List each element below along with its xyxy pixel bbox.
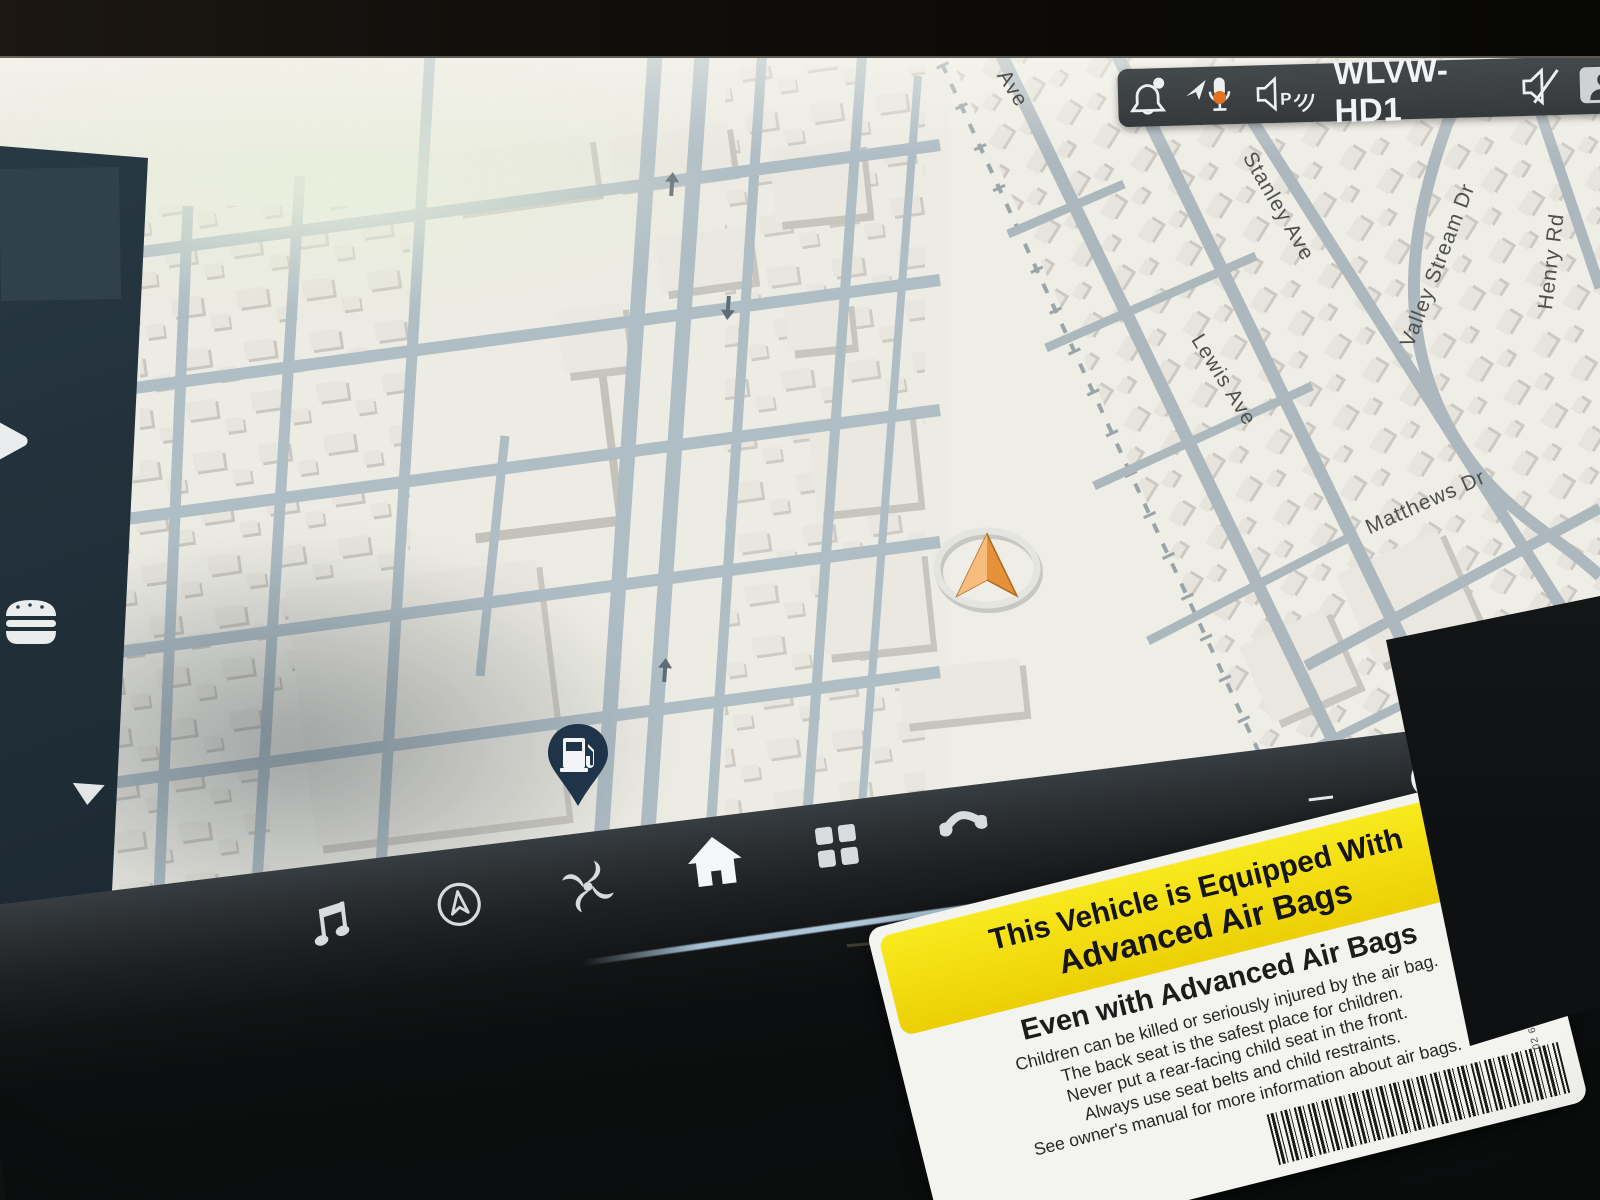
location-arrow-icon — [1186, 80, 1207, 101]
music-note-icon — [308, 900, 355, 949]
scroll-down-chevron[interactable] — [71, 783, 104, 806]
car-position-marker — [922, 512, 1052, 632]
microphone-icon — [1210, 77, 1230, 110]
apps-button[interactable] — [812, 821, 862, 875]
media-button[interactable] — [308, 900, 356, 954]
fan-icon — [559, 858, 617, 916]
nav-arrow-circle-icon — [432, 878, 485, 931]
volume-muted-icon[interactable] — [1519, 66, 1562, 107]
home-button[interactable] — [683, 832, 748, 896]
home-icon — [683, 832, 747, 891]
notification-bell-icon[interactable] — [1130, 77, 1169, 118]
phone-button[interactable] — [936, 798, 990, 856]
infotainment-photo: Ave Stanley Ave Valley Stream Dr Henry R… — [0, 0, 1600, 1200]
burger-food-icon[interactable] — [2, 596, 60, 653]
fuel-station-pin[interactable] — [542, 720, 614, 812]
phone-icon — [936, 798, 989, 851]
climate-button[interactable] — [559, 858, 618, 921]
app-grid-icon — [812, 821, 861, 870]
svg-text:P: P — [1280, 89, 1292, 108]
heated-seat-icon[interactable] — [1524, 743, 1569, 793]
radio-station-label: WLVW-HD1 — [1333, 50, 1499, 131]
parked-audio-icon[interactable]: P — [1255, 73, 1318, 115]
panel-tile[interactable] — [0, 167, 121, 301]
location-mic-icon[interactable] — [1183, 73, 1240, 119]
navigation-button[interactable] — [432, 878, 486, 936]
top-bezel — [0, 0, 1600, 58]
poi-category-partial-icon[interactable] — [0, 408, 38, 483]
driver-profile-icon[interactable] — [1577, 63, 1600, 106]
